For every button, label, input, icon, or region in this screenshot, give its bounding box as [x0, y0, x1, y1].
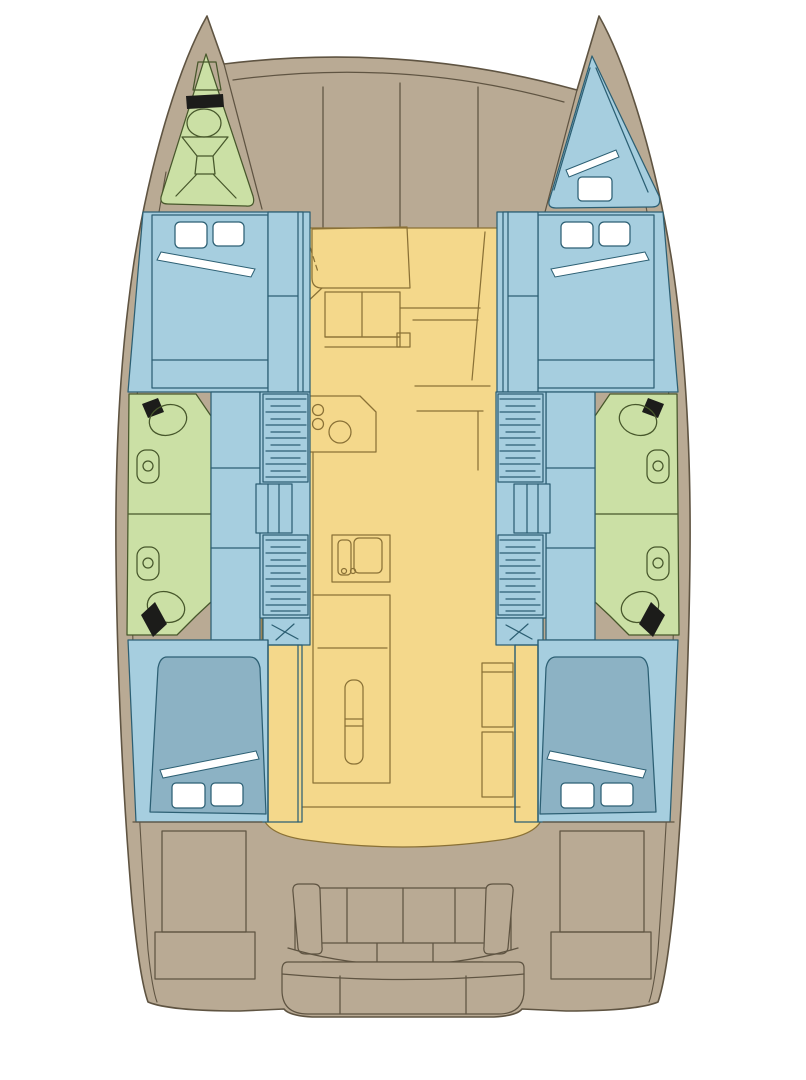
- pillow: [561, 222, 593, 248]
- port-forward-corridor: [268, 212, 303, 392]
- bench-armrest-left: [293, 884, 322, 954]
- pillow: [561, 783, 594, 808]
- pillow: [175, 222, 207, 248]
- starboard-heads: [595, 394, 679, 637]
- catamaran-deck-plan: [0, 0, 806, 1080]
- floor-plan-page: [0, 0, 806, 1080]
- stair-landing: [514, 484, 550, 533]
- starboard-aft-cabin: [515, 640, 678, 822]
- swim-platform: [282, 962, 524, 1014]
- port-aft-berth: [150, 657, 266, 814]
- pillow: [172, 783, 205, 808]
- starboard-heads-corridor: [546, 392, 595, 640]
- pillow: [211, 783, 243, 806]
- pillow: [599, 222, 630, 246]
- starboard-aft-berth: [540, 657, 656, 814]
- port-heads: [127, 394, 211, 637]
- bench-armrest-right: [484, 884, 513, 954]
- starboard-forward-corridor: [503, 212, 538, 392]
- windlass-bar: [186, 94, 224, 109]
- starboard-stairs: [496, 392, 550, 645]
- port-heads-corridor: [211, 392, 260, 640]
- pillow: [601, 783, 633, 806]
- pillow: [213, 222, 244, 246]
- bow-berth-hatch: [578, 177, 612, 201]
- port-stairs: [256, 392, 310, 645]
- stair-landing: [256, 484, 292, 533]
